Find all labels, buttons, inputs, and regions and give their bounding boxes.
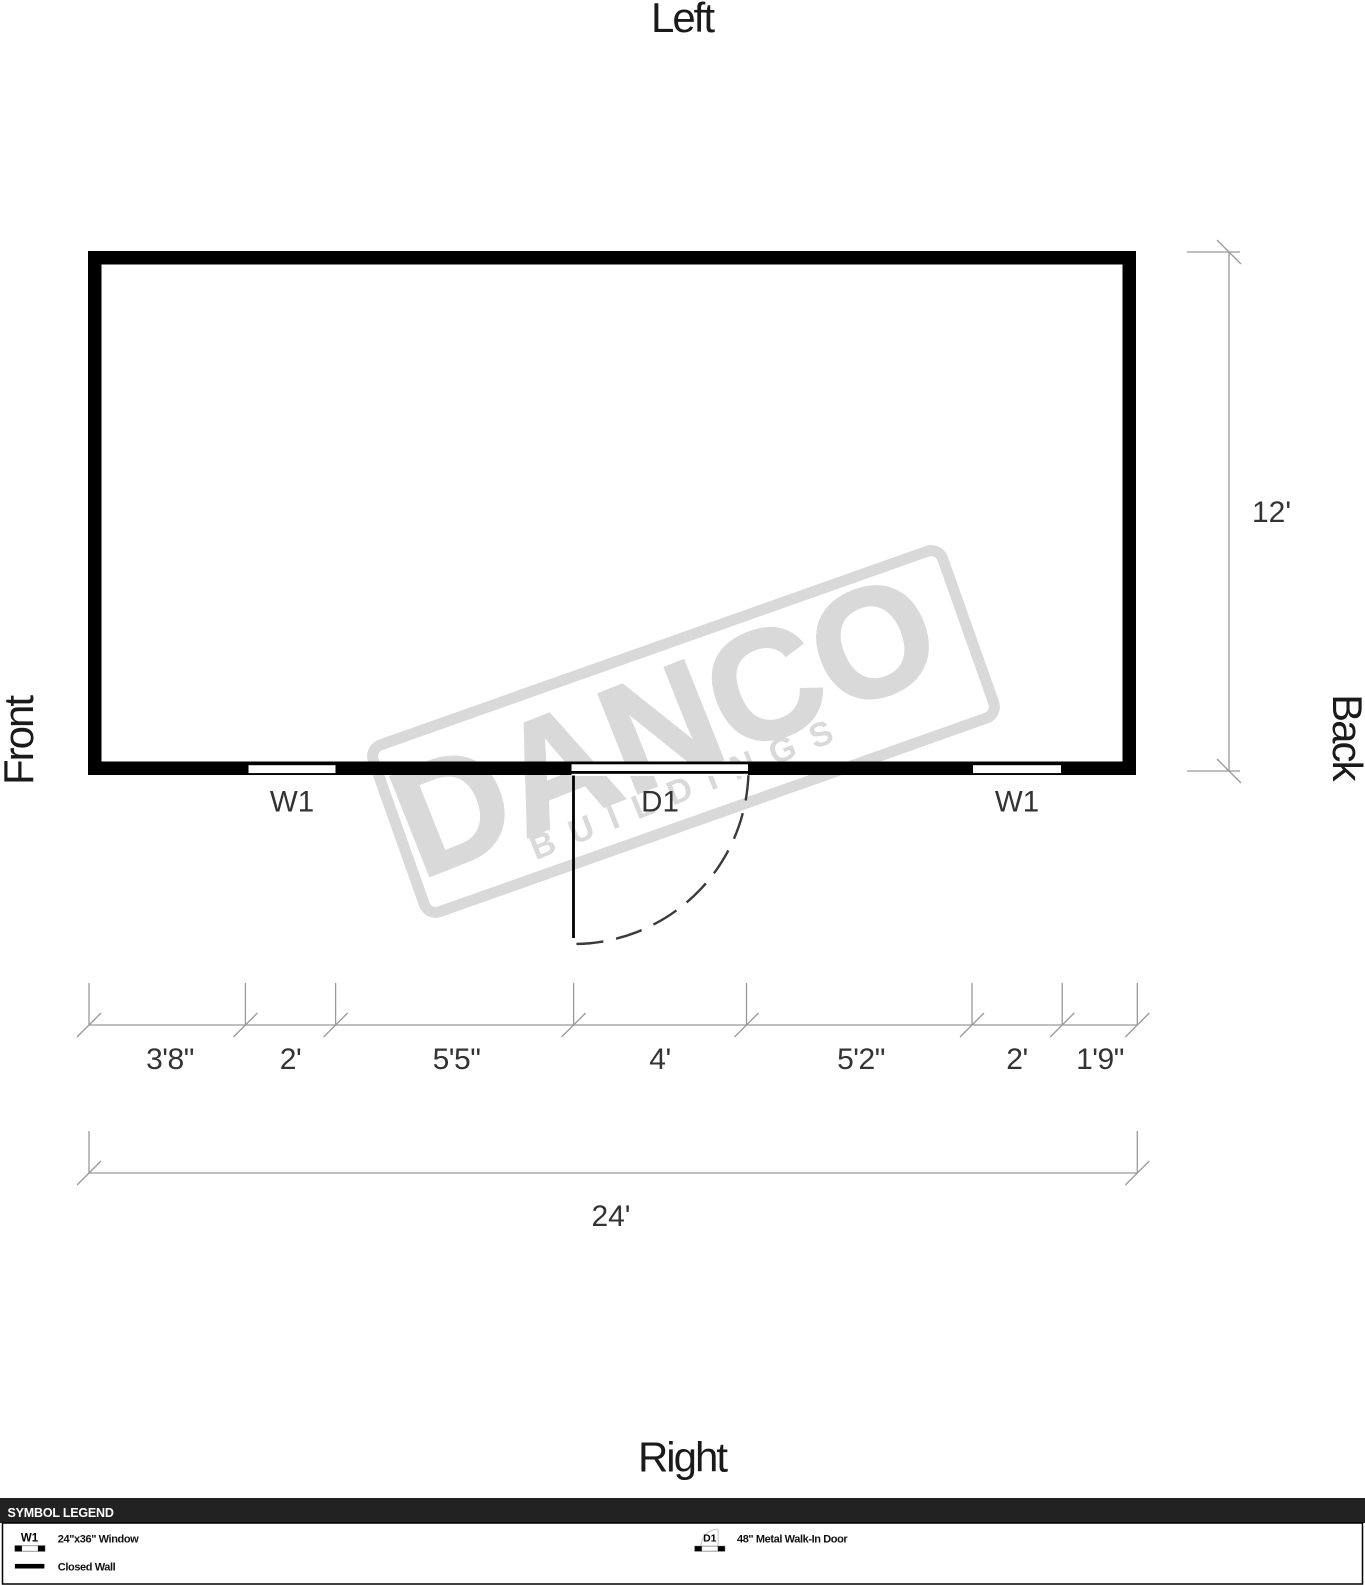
svg-text:1'9": 1'9": [1076, 1043, 1124, 1076]
svg-text:24': 24': [591, 1200, 630, 1233]
svg-text:2': 2': [280, 1043, 301, 1076]
svg-text:4': 4': [649, 1043, 670, 1076]
svg-text:12': 12': [1252, 496, 1291, 529]
svg-text:W1: W1: [21, 1533, 39, 1545]
svg-text:Closed Wall: Closed Wall: [58, 1562, 116, 1574]
svg-text:3'8": 3'8": [146, 1043, 194, 1076]
svg-text:SYMBOL LEGEND: SYMBOL LEGEND: [8, 1506, 114, 1520]
svg-text:5'5": 5'5": [433, 1043, 481, 1076]
svg-text:2': 2': [1006, 1043, 1027, 1076]
svg-text:Left: Left: [651, 0, 715, 41]
svg-text:D1: D1: [703, 1533, 717, 1545]
svg-text:D1: D1: [641, 786, 679, 819]
svg-text:W1: W1: [995, 786, 1039, 819]
svg-text:Right: Right: [638, 1433, 728, 1480]
svg-text:Front: Front: [0, 695, 42, 785]
svg-text:Back: Back: [1324, 694, 1365, 782]
svg-text:48" Metal Walk-In Door: 48" Metal Walk-In Door: [737, 1534, 848, 1546]
svg-text:W1: W1: [270, 786, 314, 819]
svg-text:24"x36" Window: 24"x36" Window: [58, 1534, 139, 1546]
svg-text:5'2": 5'2": [837, 1043, 885, 1076]
